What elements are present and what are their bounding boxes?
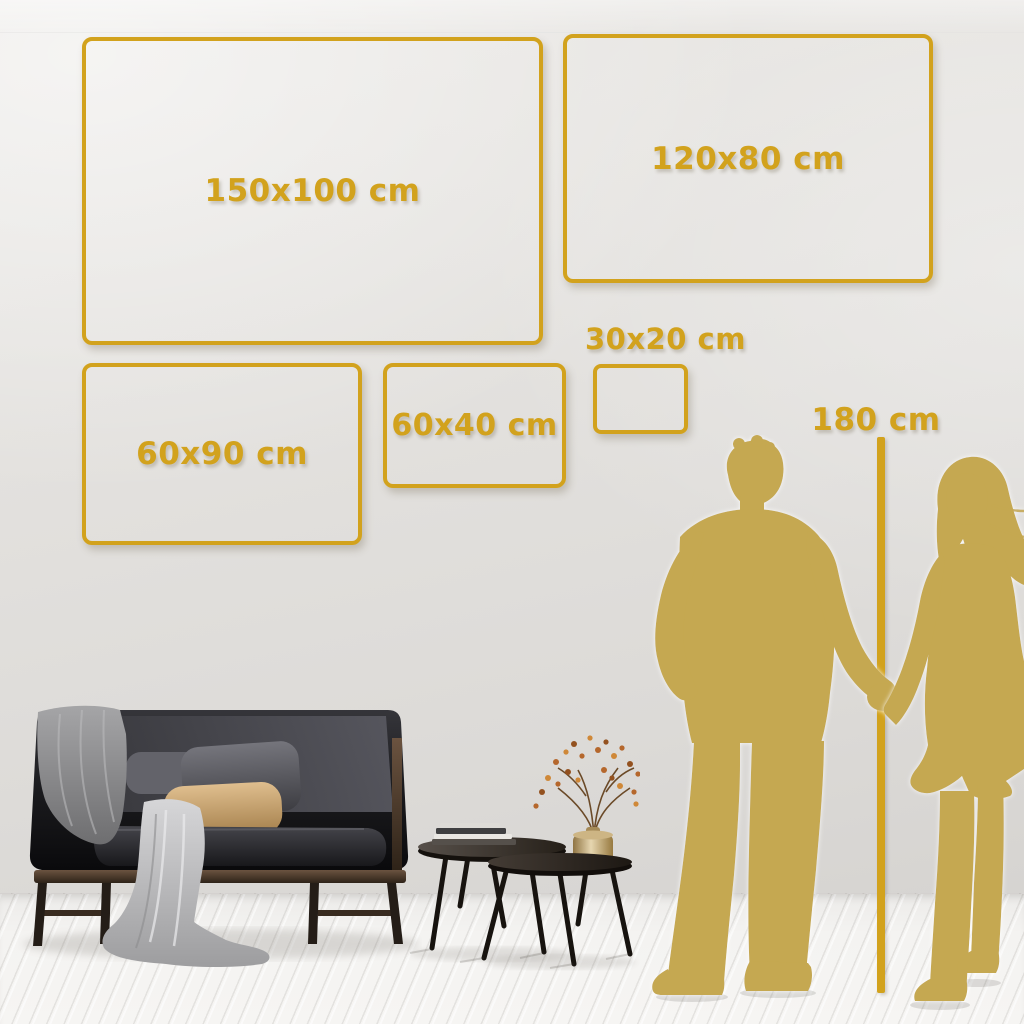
size-frame-60x90: 60x90 cm	[82, 363, 362, 545]
sofa-base-rail	[34, 870, 406, 883]
coffee-tables-illustration	[408, 726, 640, 971]
woman-silhouette	[884, 457, 1024, 1001]
books-stack	[432, 823, 516, 845]
size-frame-30x20-label: 30x20 cm	[585, 322, 741, 356]
sofa-right-post	[392, 738, 402, 870]
ceiling-shadow-line	[0, 0, 1024, 33]
branch-stems	[558, 768, 634, 836]
size-frame-60x40: 60x40 cm	[383, 363, 566, 488]
height-reference-label: 180 cm	[798, 402, 954, 438]
size-frame-150x100-label: 150x100 cm	[205, 173, 421, 209]
size-frame-120x80-label: 120x80 cm	[651, 141, 845, 177]
size-frame-120x80: 120x80 cm	[563, 34, 933, 283]
sofa-illustration	[16, 694, 422, 969]
size-frame-30x20	[593, 364, 688, 434]
size-guide-scene: 150x100 cm 120x80 cm 60x90 cm 60x40 cm 3…	[0, 0, 1024, 1024]
sofa-seat-cushion	[94, 826, 386, 866]
size-frame-60x90-label: 60x90 cm	[136, 436, 308, 472]
couple-silhouette-illustration	[640, 435, 1024, 1024]
right-tabletop	[488, 853, 632, 871]
man-silhouette	[652, 435, 899, 995]
branch-berries	[533, 735, 640, 808]
size-frame-60x40-label: 60x40 cm	[391, 408, 557, 443]
size-frame-150x100: 150x100 cm	[82, 37, 543, 345]
sofa-right-stretcher	[318, 910, 396, 916]
vase-rim	[573, 831, 613, 840]
sofa-left-stretcher	[36, 910, 108, 916]
